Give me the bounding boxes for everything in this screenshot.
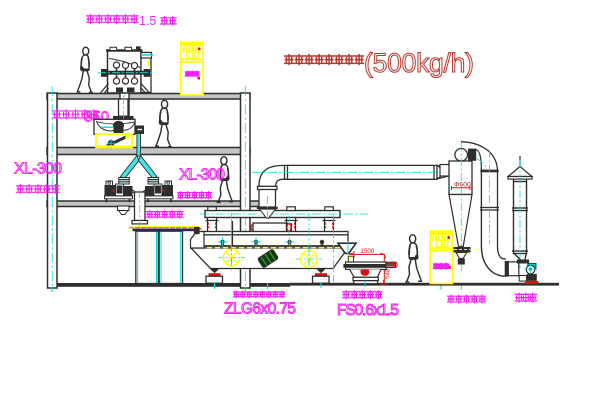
svg-text:XL-300: XL-300 [14,161,62,178]
svg-text:Φ600: Φ600 [454,181,471,188]
svg-text:XL-300: XL-300 [179,167,225,184]
svg-text:1.5: 1.5 [139,14,156,28]
svg-text:1500: 1500 [361,248,375,255]
svg-text:ZLG6x0.75: ZLG6x0.75 [224,301,296,318]
svg-text:FS0.6x1.5: FS0.6x1.5 [337,302,399,319]
svg-text:(500kg/h): (500kg/h) [364,48,474,78]
